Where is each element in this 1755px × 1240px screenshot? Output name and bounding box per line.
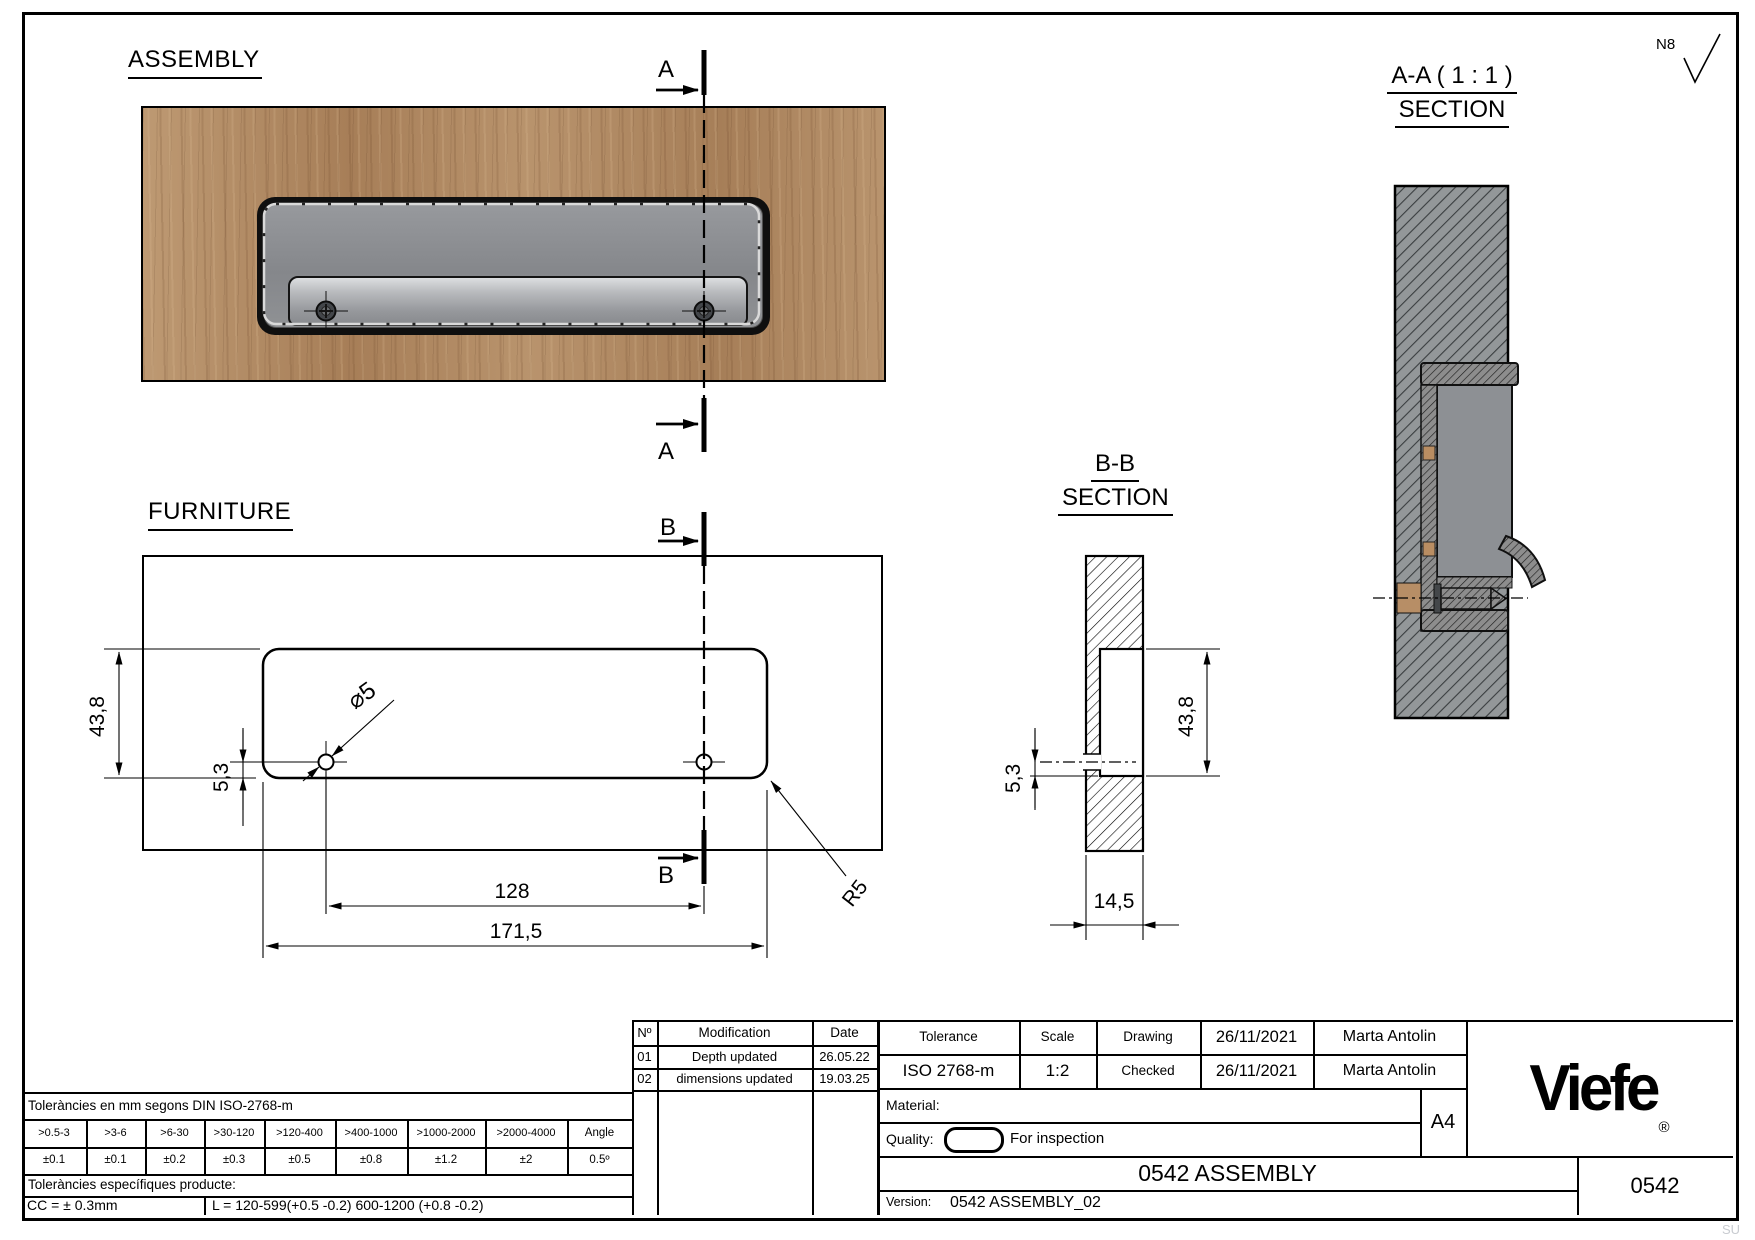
- brand-logo-text: Viefe: [1529, 1051, 1656, 1125]
- divider-line: [878, 1122, 1420, 1124]
- tolerance-range: Angle: [567, 1119, 632, 1147]
- drawing-sheet: ASSEMBLY FURNITURE A-A ( 1 : 1 ) SECTION…: [0, 0, 1755, 1240]
- tolerance-table-title: Toleràncies en mm segons DIN ISO-2768-m: [28, 1092, 293, 1119]
- divider-line: [878, 1088, 1466, 1090]
- tolerance-l-value: L = 120-599(+0.5 -0.2) 600-1200 (+0.8 -0…: [212, 1196, 484, 1215]
- tolerance-range: >6-30: [145, 1119, 204, 1147]
- quality-label: Quality:: [886, 1122, 933, 1156]
- surface-finish-icon: [1684, 34, 1720, 82]
- dim-furniture-corner-radius: R5: [838, 876, 873, 911]
- mod-col-header-date: Date: [812, 1020, 877, 1045]
- mod-row-text: Depth updated: [657, 1045, 812, 1068]
- tolerance-value: ±0.1: [22, 1147, 86, 1174]
- tolerance-value: 0.5º: [567, 1147, 632, 1174]
- dim-bb-height: 43,8: [1175, 696, 1198, 737]
- dim-furniture-hole-spacing: 128: [494, 880, 529, 903]
- section-line-a: [656, 50, 704, 452]
- tolerance-value: ±2: [485, 1147, 567, 1174]
- checked-author: Marta Antolin: [1313, 1054, 1466, 1088]
- mod-col-header-modification: Modification: [657, 1020, 812, 1045]
- tolerance-range: >0.5-3: [22, 1119, 86, 1147]
- tolerance-value: ±0.3: [204, 1147, 264, 1174]
- scale-label: Scale: [1019, 1020, 1096, 1054]
- tolerance-range: >400-1000: [335, 1119, 407, 1147]
- corner-watermark: SU: [1722, 1222, 1740, 1237]
- dim-bb-depth: 14,5: [1094, 890, 1135, 913]
- drawing-label: Drawing: [1096, 1020, 1200, 1054]
- tolerance-value: ISO 2768-m: [878, 1054, 1019, 1088]
- tolerance-range: >1000-2000: [407, 1119, 485, 1147]
- tolerance-value: ±0.5: [264, 1147, 335, 1174]
- mod-row-date: 19.03.25: [812, 1068, 877, 1090]
- bb-section-view: [1040, 556, 1143, 851]
- tolerance-value: ±0.2: [145, 1147, 204, 1174]
- version-label: Version:: [886, 1190, 931, 1215]
- dim-furniture-hole-offset: 5,3: [210, 763, 233, 792]
- drawing-code: 0542: [1577, 1156, 1733, 1215]
- quality-stamp-oval: [944, 1127, 1004, 1153]
- aa-handle-top-flange: [1421, 363, 1518, 385]
- tolerance-range: >30-120: [204, 1119, 264, 1147]
- mod-row-no: 01: [632, 1045, 657, 1068]
- mod-row-no: 02: [632, 1068, 657, 1090]
- version-value: 0542 ASSEMBLY_02: [950, 1190, 1101, 1215]
- recess-crimp-ticks: [264, 204, 759, 324]
- divider-line: [204, 1196, 206, 1215]
- scale-value: 1:2: [1019, 1054, 1096, 1088]
- brand-logo: Viefe ®: [1468, 1022, 1731, 1154]
- tolerance-value: ±0.8: [335, 1147, 407, 1174]
- checked-date: 26/11/2021: [1200, 1054, 1313, 1088]
- tolerance-value: ±1.2: [407, 1147, 485, 1174]
- aa-section-view: [1373, 186, 1545, 718]
- tolerance-range: >3-6: [86, 1119, 145, 1147]
- drawing-author: Marta Antolin: [1313, 1020, 1466, 1054]
- checked-label: Checked: [1096, 1054, 1200, 1088]
- material-label: Material:: [886, 1088, 940, 1122]
- paper-size: A4: [1420, 1088, 1466, 1156]
- tolerance-range: >120-400: [264, 1119, 335, 1147]
- quality-value: For inspection: [1010, 1122, 1104, 1156]
- tolerance-range: >2000-4000: [485, 1119, 567, 1147]
- dim-furniture-height: 43,8: [86, 696, 109, 737]
- mod-row-date: 26.05.22: [812, 1045, 877, 1068]
- divider-line: [632, 1090, 877, 1092]
- registered-trademark-icon: ®: [1659, 1119, 1670, 1136]
- tolerance-specific-title: Toleràncies específiques producte:: [28, 1174, 236, 1196]
- dim-bb-hole-offset: 5,3: [1002, 764, 1025, 793]
- furniture-view: [143, 556, 882, 850]
- dim-furniture-length: 171,5: [490, 920, 543, 943]
- tolerance-label: Tolerance: [878, 1020, 1019, 1054]
- tolerance-cc-value: CC = ± 0.3mm: [27, 1196, 118, 1215]
- drawing-date: 26/11/2021: [1200, 1020, 1313, 1054]
- mod-col-header-no: Nº: [632, 1020, 657, 1045]
- drawing-title: 0542 ASSEMBLY: [878, 1156, 1577, 1190]
- mod-row-text: dimensions updated: [657, 1068, 812, 1090]
- tolerance-value: ±0.1: [86, 1147, 145, 1174]
